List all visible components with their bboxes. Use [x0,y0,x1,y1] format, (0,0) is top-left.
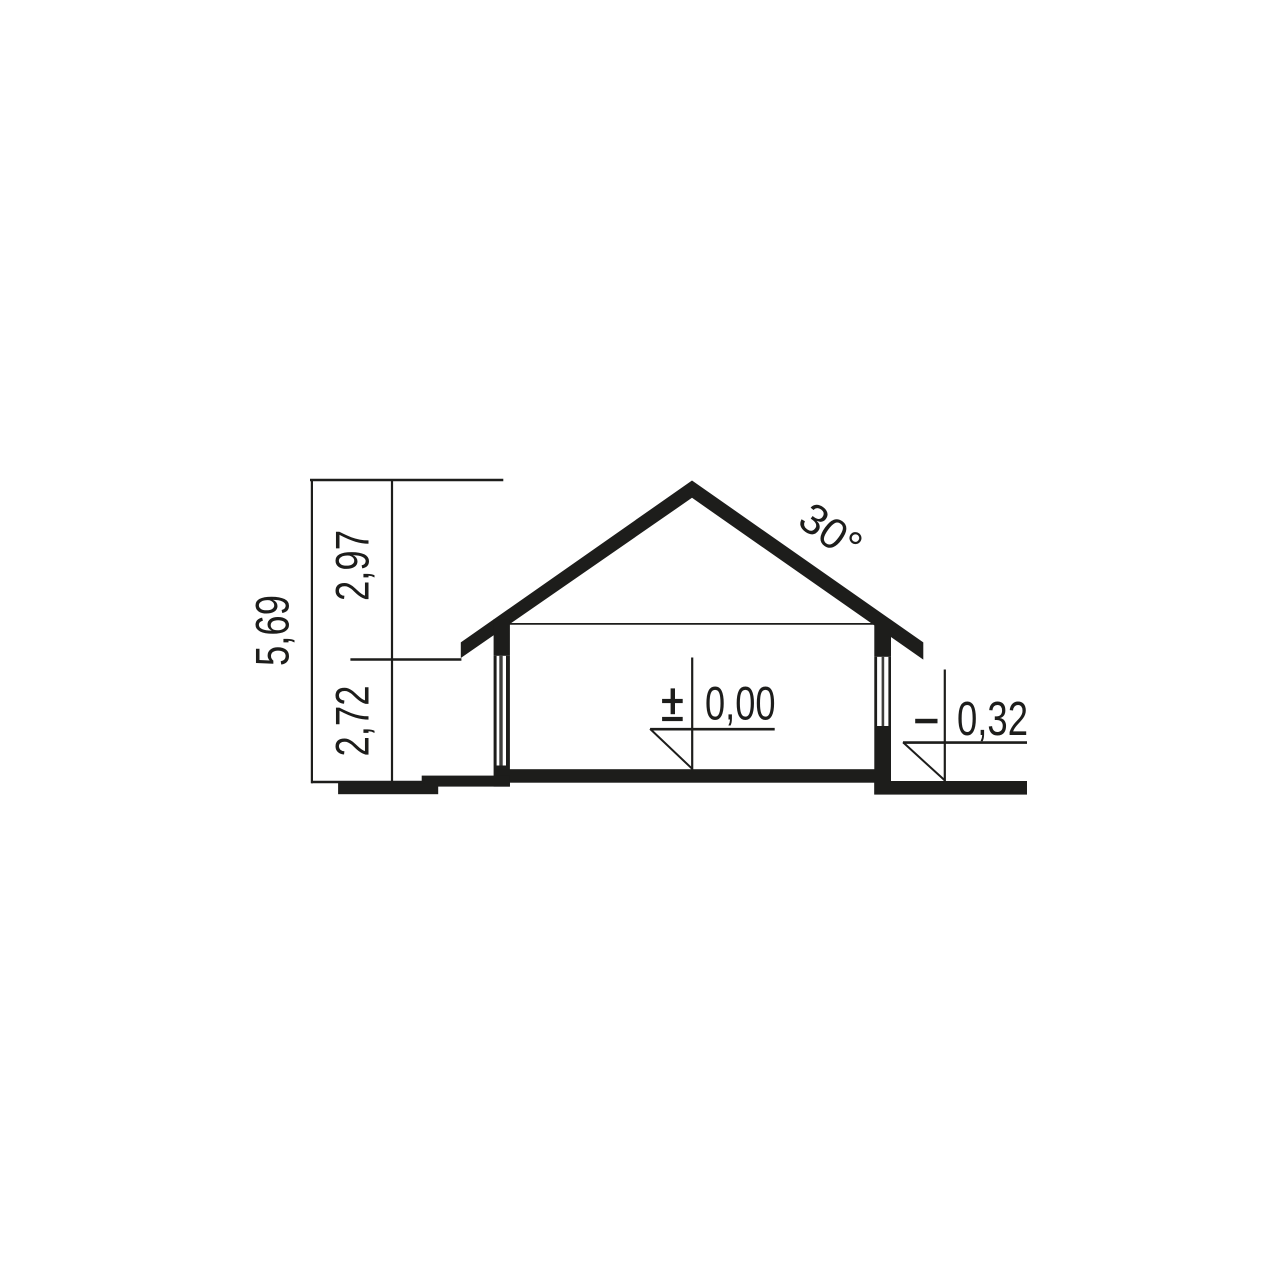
svg-text:0,32: 0,32 [957,693,1028,746]
svg-text:0,00: 0,00 [705,676,776,729]
svg-text:5,69: 5,69 [246,595,299,666]
svg-text:2,97: 2,97 [326,530,379,601]
svg-text:2,72: 2,72 [326,686,379,757]
